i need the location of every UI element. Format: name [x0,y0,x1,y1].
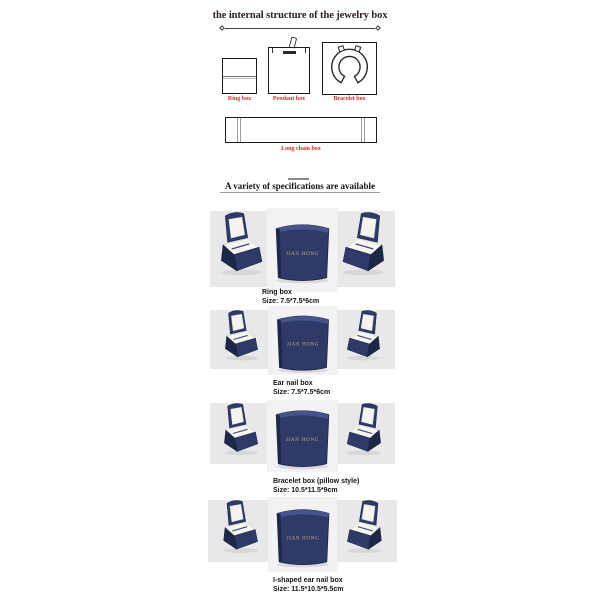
rule-left-diamond-icon [219,25,225,31]
long-chain-box-diagram [225,117,377,143]
chain-divider-line [237,118,238,142]
product-photo-open-left [210,211,267,287]
open-box-art [338,403,395,464]
rule-right-diamond-icon [375,25,381,31]
closed-box-art: JIAN HONG [267,208,338,292]
product-photo-closed: JIAN HONG [268,497,338,572]
chain-divider-line [240,118,241,142]
product-caption: Ring box Size: 7.5*7.5*6cm [262,289,319,306]
closed-box-art: JIAN HONG [268,497,338,572]
pendant-box-diagram [268,47,310,94]
product-caption: Ear nail box Size: 7.5*7.5*6cm [273,380,330,397]
open-box-art [337,310,395,369]
product-photo-open-left [208,500,268,562]
pendant-hanger-bar [283,51,296,54]
jewelry-box-product-sheet: the internal structure of the jewelry bo… [0,0,600,600]
chain-divider-line [361,118,362,142]
brand-text: JIAN HONG [287,341,319,347]
specifications-heading-text: A variety of specifications are availabl… [220,181,380,193]
product-name: Bracelet box (pillow style) [273,478,359,487]
product-photo-closed: JIAN HONG [268,306,338,375]
brand-text: JIAN HONG [286,251,319,257]
ring-box-diagram [222,58,257,94]
long-chain-box-label: Long chain box [225,146,377,153]
bracelet-box-label: Bracelet box [322,96,377,103]
product-caption: Bracelet box (pillow style) Size: 10.5*1… [273,478,359,495]
open-box-art [338,211,395,287]
product-photo-closed: JIAN HONG [267,400,338,472]
bracelet-cuff-icon [323,43,376,94]
pendant-corner-tick [305,48,306,53]
product-name: Ear nail box [273,380,330,389]
product-size: Size: 11.5*10.5*5.5cm [273,586,343,595]
closed-box-art: JIAN HONG [268,306,338,375]
product-caption: I-shaped ear nail box Size: 11.5*10.5*5.… [273,577,343,594]
product-name: Ring box [262,289,319,298]
product-photo-open-right [337,310,395,369]
product-size: Size: 7.5*7.5*6cm [262,298,319,307]
product-photo-open-right [338,211,395,287]
open-box-art [210,211,267,287]
product-photo-open-left [210,403,267,464]
product-photo-open-right [338,403,395,464]
pendant-corner-tick [272,48,273,53]
product-photo-open-left [210,310,268,369]
product-name: I-shaped ear nail box [273,577,343,586]
ring-slot-line [223,76,256,77]
product-size: Size: 7.5*7.5*6cm [273,389,330,398]
closed-box-art: JIAN HONG [267,400,338,472]
open-box-art [337,500,397,562]
bracelet-box-diagram [322,42,377,95]
page-title: the internal structure of the jewelry bo… [0,10,600,21]
open-box-art [210,310,268,369]
product-photo-open-right [337,500,397,562]
ring-box-label: Ring box [222,96,257,103]
chain-divider-line [364,118,365,142]
open-box-art [208,500,268,562]
ring-slot-line-2 [223,78,256,79]
pendant-box-label: Pendant box [268,96,310,103]
product-photo-closed: JIAN HONG [267,208,338,292]
rule-line [225,28,375,29]
heading-dash [288,178,309,180]
open-box-art [210,403,267,464]
brand-text: JIAN HONG [287,535,320,541]
brand-text: JIAN HONG [286,437,319,443]
title-underline-rule [220,25,380,31]
specifications-heading: A variety of specifications are availabl… [0,181,600,193]
product-size: Size: 10.5*11.5*9cm [273,487,359,496]
